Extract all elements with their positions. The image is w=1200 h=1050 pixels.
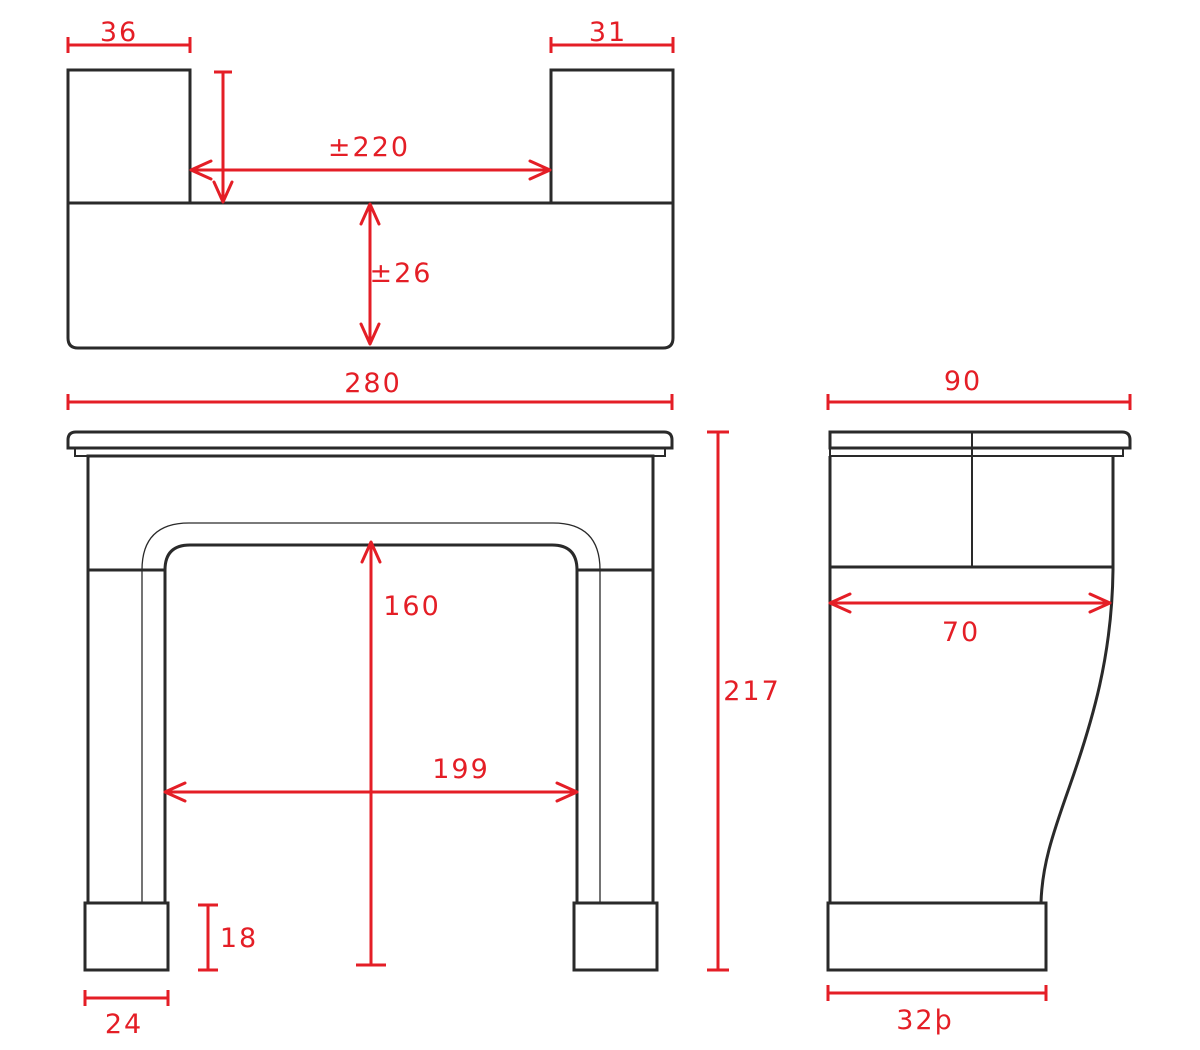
dim-between-blocks: ±220: [191, 132, 550, 179]
side-view: 90 70 32þ: [828, 366, 1130, 1036]
dim-foot-depth: 32þ: [828, 985, 1046, 1036]
dim-line-block-height: [214, 72, 232, 202]
dim-label-left-block-width: 36: [100, 17, 138, 48]
dim-overall-height: 217: [707, 432, 781, 970]
front-left-foot: [85, 903, 168, 970]
dim-left-block-width: 36: [68, 17, 190, 53]
dim-label-overall-depth: 90: [944, 366, 982, 397]
dim-body-depth: 70: [830, 594, 1110, 648]
side-shelf: [830, 432, 1130, 448]
dim-right-block-width: 31: [551, 17, 673, 53]
plan-left-block: [68, 70, 190, 203]
dim-label-foot-height: 18: [220, 923, 258, 954]
plan-right-block: [551, 70, 673, 203]
dim-overall-width: 280: [68, 368, 672, 410]
dim-label-foot-depth: 32þ: [896, 1005, 954, 1036]
dim-label-opening-width: 199: [432, 754, 490, 785]
dim-label-right-block-width: 31: [589, 17, 627, 48]
dim-label-opening-height: 160: [383, 591, 441, 622]
dim-overall-depth: 90: [828, 366, 1130, 410]
side-console-curve: [1041, 570, 1113, 903]
dim-label-base-depth: ±26: [370, 258, 433, 289]
dim-label-between-blocks: ±220: [328, 132, 410, 163]
dim-base-depth: ±26: [361, 204, 432, 344]
front-right-foot: [574, 903, 657, 970]
side-foot: [828, 903, 1046, 970]
dim-foot-height: 18: [198, 905, 258, 970]
front-shelf: [68, 432, 672, 448]
dim-label-overall-height: 217: [723, 676, 781, 707]
drawing-canvas: 36 31 ±220 ±26: [0, 0, 1200, 1050]
dim-label-body-depth: 70: [942, 617, 980, 648]
top-view: 36 31 ±220 ±26: [68, 17, 673, 348]
dim-opening-height: 160: [356, 542, 441, 965]
dim-foot-width: 24: [85, 990, 168, 1040]
front-view: 280 160 199 18 24 217: [68, 368, 781, 1040]
dim-label-foot-width: 24: [105, 1009, 143, 1040]
technical-drawing: 36 31 ±220 ±26: [0, 0, 1200, 1050]
dim-label-overall-width: 280: [344, 368, 402, 399]
